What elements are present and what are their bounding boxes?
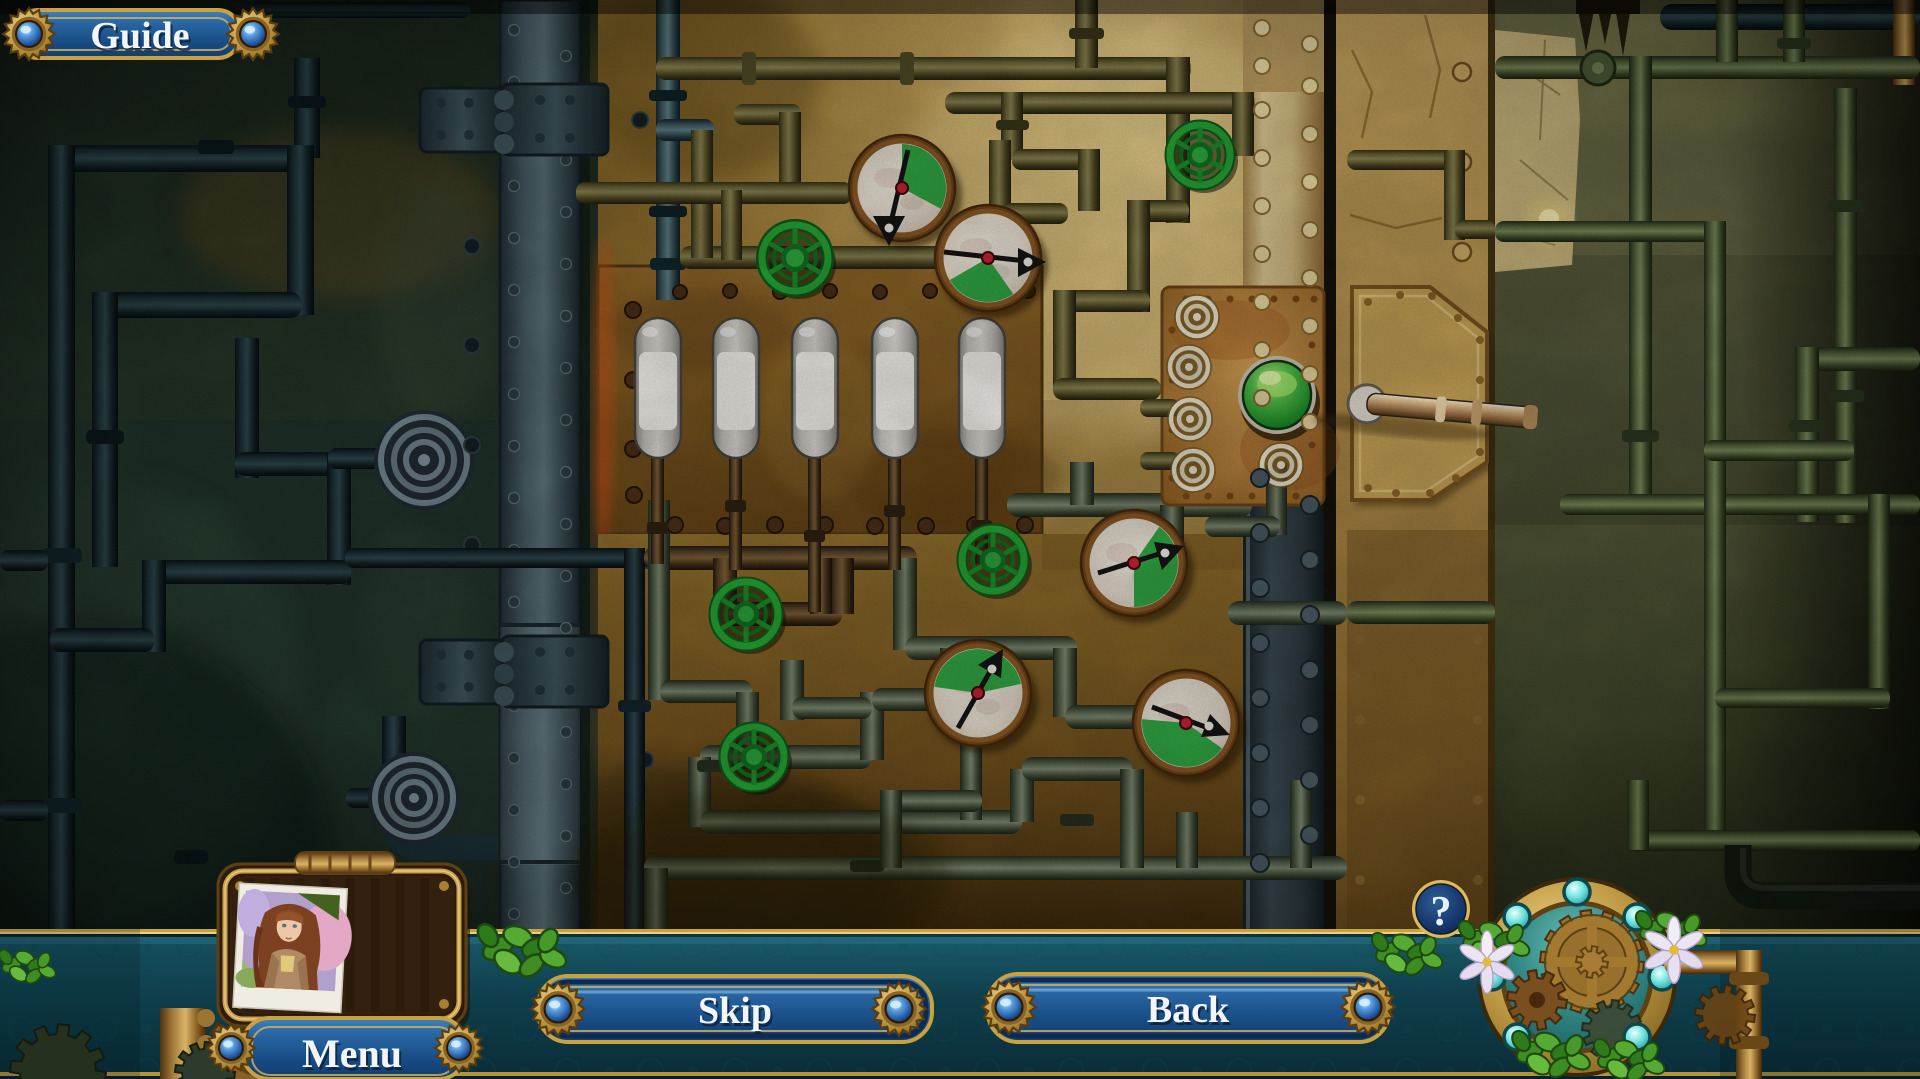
- svg-text:?: ?: [1431, 889, 1452, 935]
- svg-text:Back: Back: [1147, 989, 1230, 1031]
- svg-text:Menu: Menu: [302, 1031, 402, 1076]
- svg-text:Guide: Guide: [90, 15, 189, 57]
- svg-text:Skip: Skip: [698, 990, 772, 1032]
